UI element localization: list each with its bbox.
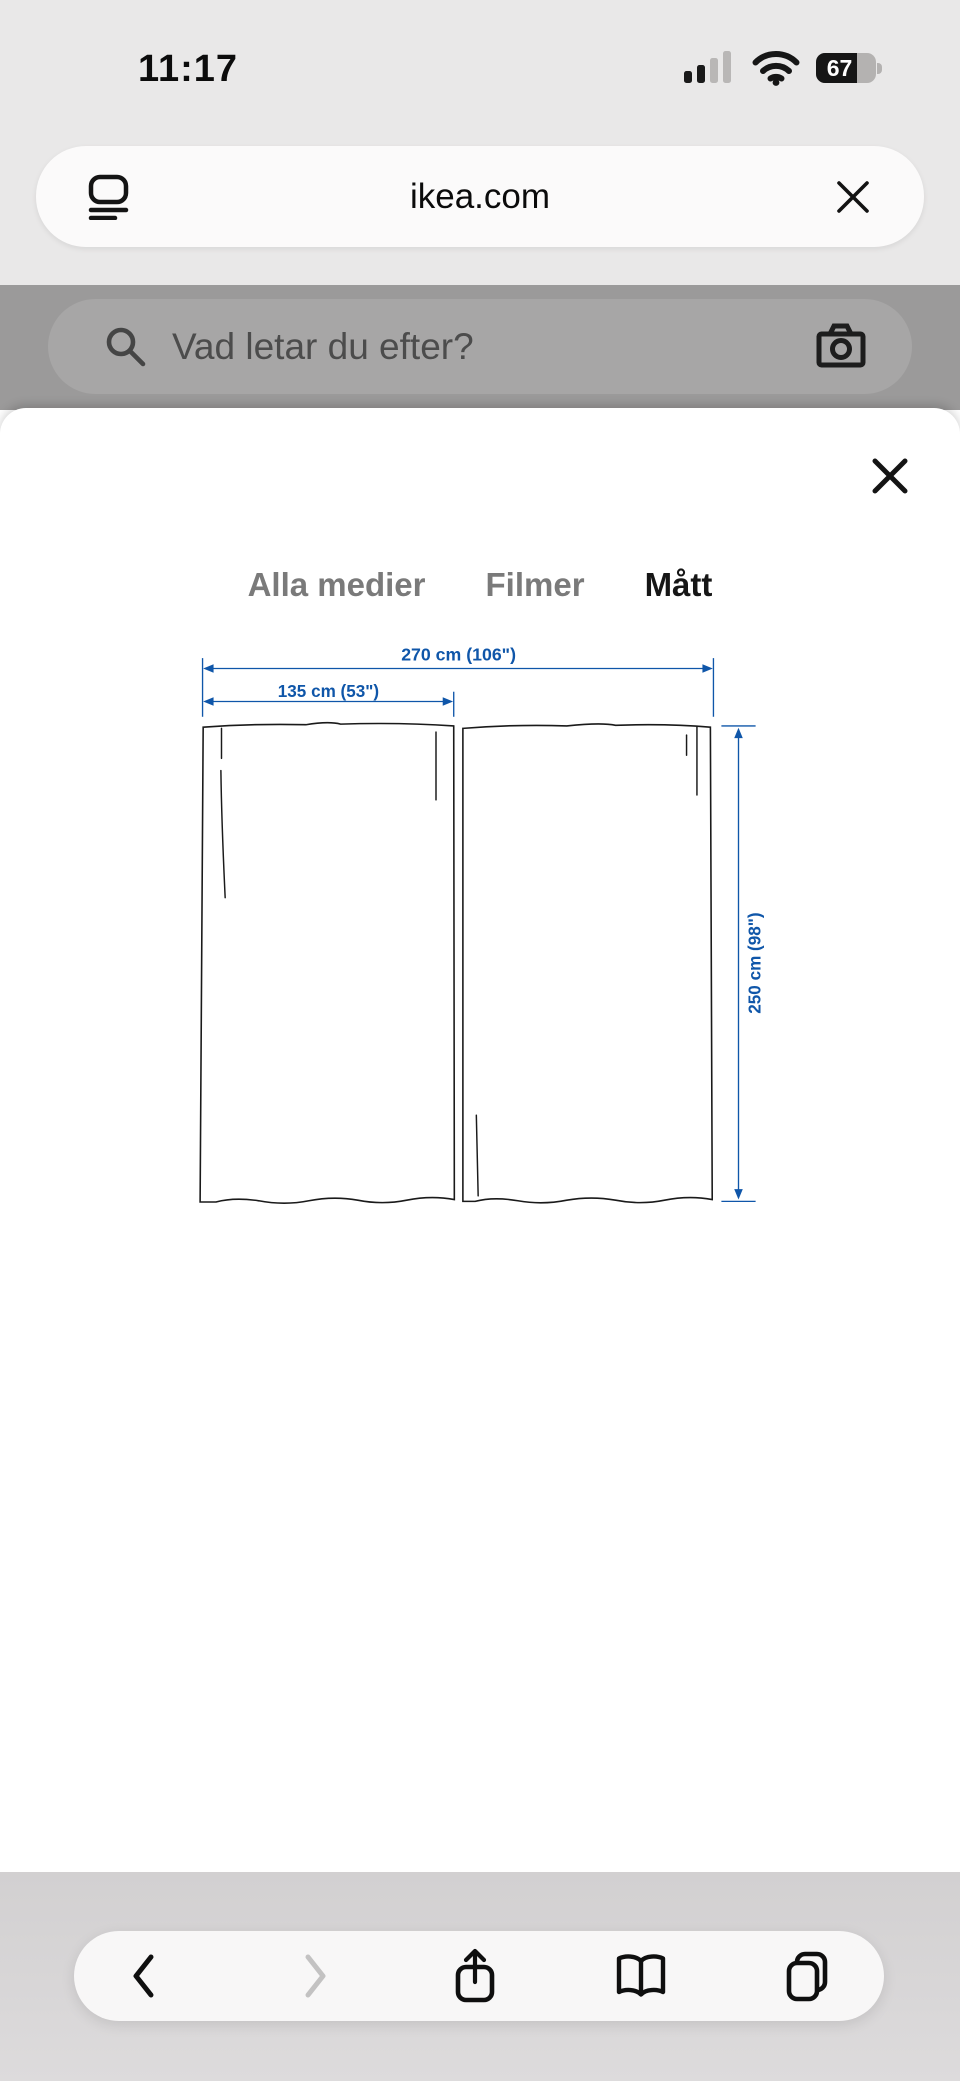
status-time: 11:17 bbox=[128, 48, 248, 91]
curtain-panels bbox=[200, 723, 712, 1203]
camera-icon[interactable] bbox=[816, 322, 866, 375]
bookmarks-button[interactable] bbox=[596, 1931, 686, 2021]
search-placeholder: Vad letar du efter? bbox=[172, 299, 474, 394]
close-icon[interactable] bbox=[834, 178, 872, 221]
tabs-button[interactable] bbox=[762, 1931, 852, 2021]
share-button[interactable] bbox=[430, 1931, 520, 2021]
iphone-screen: 11:17 67 bbox=[0, 0, 960, 2081]
battery-percent: 67 bbox=[816, 53, 863, 83]
tab-filmer[interactable]: Filmer bbox=[486, 566, 585, 604]
media-tabs: Alla medier Filmer Mått bbox=[0, 566, 960, 604]
dimensions-diagram: 270 cm (106") 135 cm (53") 250 cm (98") bbox=[0, 630, 960, 1620]
toolbar bbox=[74, 1931, 884, 2021]
tab-matt[interactable]: Mått bbox=[645, 566, 713, 604]
chevron-right-icon bbox=[299, 1950, 333, 2002]
dimension-arrowheads bbox=[203, 664, 743, 1199]
label-total-width: 270 cm (106") bbox=[401, 645, 516, 665]
url-text[interactable]: ikea.com bbox=[36, 177, 924, 217]
dimension-lines bbox=[203, 658, 756, 1201]
tab-alla-medier[interactable]: Alla medier bbox=[248, 566, 426, 604]
safari-top-chrome: 11:17 67 bbox=[0, 0, 960, 285]
status-icons: 67 bbox=[684, 50, 884, 86]
wifi-icon bbox=[752, 50, 800, 86]
back-button[interactable] bbox=[98, 1931, 188, 2021]
search-icon bbox=[104, 325, 148, 374]
chevron-left-icon bbox=[126, 1950, 160, 2002]
fold-lines bbox=[221, 727, 697, 1196]
label-height: 250 cm (98") bbox=[746, 912, 765, 1013]
media-modal: Alla medier Filmer Mått bbox=[0, 408, 960, 1872]
forward-button[interactable] bbox=[271, 1931, 361, 2021]
left-panel bbox=[200, 723, 454, 1203]
label-panel-width: 135 cm (53") bbox=[278, 682, 379, 701]
cellular-signal-icon bbox=[684, 51, 736, 85]
tabs-icon bbox=[782, 1949, 832, 2003]
right-panel bbox=[463, 724, 712, 1203]
safari-bottom-chrome bbox=[0, 1872, 960, 2081]
book-icon bbox=[613, 1952, 669, 2000]
share-icon bbox=[451, 1946, 499, 2006]
battery-icon: 67 bbox=[816, 52, 884, 84]
dimmed-page-overlay[interactable]: Vad letar du efter? bbox=[0, 285, 960, 410]
search-input[interactable]: Vad letar du efter? bbox=[48, 299, 912, 394]
close-icon[interactable] bbox=[872, 458, 908, 499]
url-bar[interactable]: ikea.com bbox=[36, 146, 924, 247]
